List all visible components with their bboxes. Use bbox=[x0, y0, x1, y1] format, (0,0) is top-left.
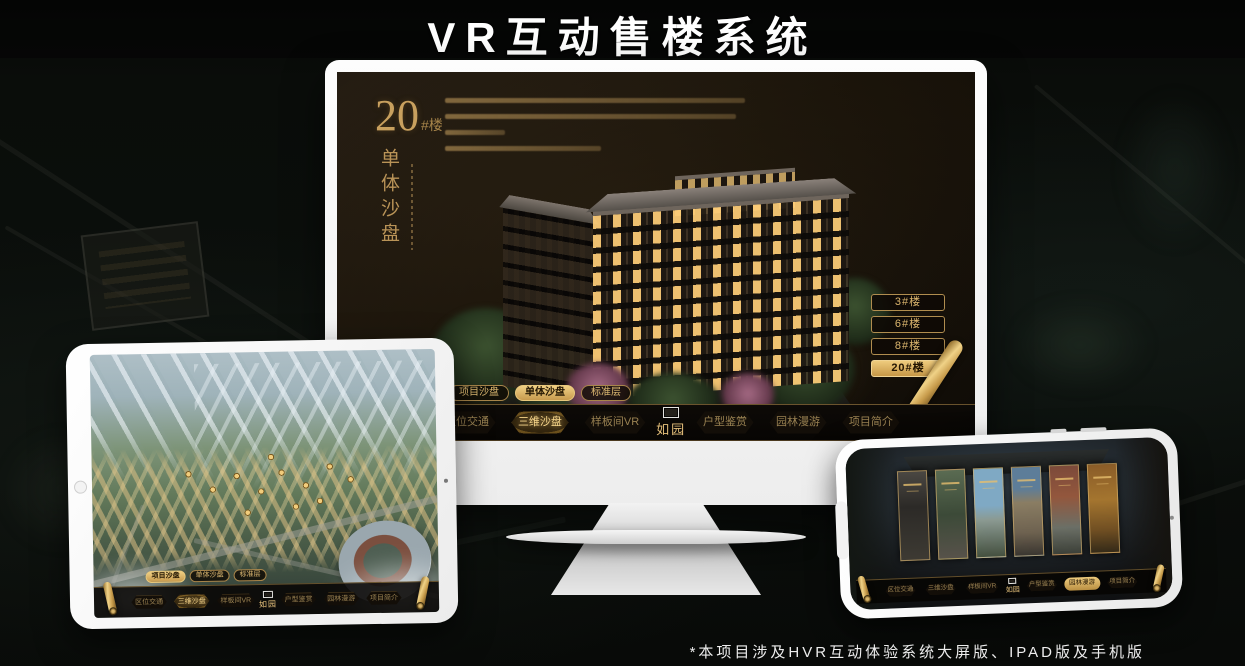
nav-item-3d-sandbox[interactable]: 三维沙盘 bbox=[506, 410, 574, 435]
nav-item-garden-roam-active[interactable]: 园林漫游 bbox=[1064, 577, 1100, 591]
project-logo[interactable]: 如园 bbox=[259, 590, 277, 609]
home-button[interactable] bbox=[74, 480, 87, 493]
gallery-panel-sky-view[interactable] bbox=[973, 467, 1006, 558]
camera-icon bbox=[1170, 515, 1174, 519]
sandbox-subtabs: 项目沙盘 单体沙盘 标准层 bbox=[449, 385, 637, 401]
building-front-facade bbox=[593, 193, 849, 399]
floor-button-3[interactable]: 3#楼 bbox=[871, 294, 945, 311]
volume-button[interactable] bbox=[1080, 427, 1106, 432]
logo-text: 如园 bbox=[259, 598, 277, 609]
page-title: VR互动售楼系统 bbox=[0, 4, 1245, 65]
camera-icon bbox=[444, 478, 448, 482]
subtab-project-sandbox-active[interactable]: 项目沙盘 bbox=[146, 570, 186, 583]
promo-stage: VR互动售楼系统 20#楼 单体沙盘 bbox=[0, 0, 1245, 666]
nav-item-floorplans[interactable]: 户型鉴赏 bbox=[691, 410, 759, 435]
monitor-stand-foot bbox=[506, 530, 806, 544]
seal-icon bbox=[663, 407, 679, 418]
main-nav-bar: 区位交通 三维沙盘 样板间VR 如园 户型鉴赏 园林漫游 项目简介 bbox=[856, 568, 1167, 604]
text-line bbox=[445, 130, 505, 135]
building-suffix: #楼 bbox=[421, 117, 443, 133]
description-paragraph bbox=[445, 98, 745, 162]
tablet-device: 项目沙盘 单体沙盘 标准层 区位交通 三维沙盘 样板间VR 如园 户型鉴赏 园林… bbox=[66, 338, 459, 630]
text-line bbox=[445, 98, 745, 103]
subtab-project-sandbox[interactable]: 项目沙盘 bbox=[449, 385, 509, 401]
text-line bbox=[445, 114, 736, 119]
nav-item-garden-roam[interactable]: 园林漫游 bbox=[764, 410, 832, 435]
sandbox-subtabs: 项目沙盘 单体沙盘 标准层 bbox=[146, 569, 271, 583]
nav-item-location[interactable]: 区位交通 bbox=[128, 594, 170, 610]
gallery-panel-autumn[interactable] bbox=[1049, 464, 1082, 555]
subtab-single-building[interactable]: 单体沙盘 bbox=[515, 385, 575, 401]
power-button[interactable] bbox=[1050, 429, 1066, 434]
gallery-panel-courtyard[interactable] bbox=[897, 470, 930, 561]
subtab-standard-floor[interactable]: 标准层 bbox=[233, 569, 266, 582]
project-logo[interactable]: 如园 bbox=[656, 407, 686, 438]
phone-notch bbox=[835, 501, 849, 559]
vertical-divider bbox=[411, 164, 413, 250]
nav-item-showroom-vr[interactable]: 样板间VR bbox=[963, 581, 1002, 595]
mode-title-vertical: 单体沙盘 bbox=[375, 148, 402, 248]
tablet-screen: 项目沙盘 单体沙盘 标准层 区位交通 三维沙盘 样板间VR 如园 户型鉴赏 园林… bbox=[90, 349, 440, 618]
text-line bbox=[445, 146, 601, 151]
background-glow bbox=[1120, 90, 1230, 250]
logo-text: 如园 bbox=[656, 419, 686, 438]
nav-item-project-intro[interactable]: 项目简介 bbox=[1104, 575, 1140, 589]
project-logo[interactable]: 如园 bbox=[1005, 578, 1020, 596]
main-nav-bar: 区位交通 三维沙盘 样板间VR 如园 户型鉴赏 园林漫游 项目简介 bbox=[94, 581, 439, 618]
building-number: 20 bbox=[375, 91, 419, 140]
floor-button-6[interactable]: 6#楼 bbox=[871, 316, 945, 333]
gallery-panel-interior[interactable] bbox=[1087, 463, 1120, 554]
subtab-single-building[interactable]: 单体沙盘 bbox=[190, 570, 230, 583]
floor-button-8[interactable]: 8#楼 bbox=[871, 338, 945, 355]
monitor-stand bbox=[551, 503, 761, 595]
nav-item-3d-sandbox[interactable]: 三维沙盘 bbox=[922, 582, 958, 596]
nav-item-garden-roam[interactable]: 园林漫游 bbox=[320, 591, 362, 607]
background-plaque bbox=[81, 221, 210, 331]
nav-item-project-intro[interactable]: 项目简介 bbox=[837, 410, 905, 435]
seal-icon bbox=[1008, 578, 1016, 584]
nav-item-floorplans[interactable]: 户型鉴赏 bbox=[1024, 578, 1060, 592]
nav-item-location[interactable]: 区位交通 bbox=[882, 584, 918, 598]
nav-item-showroom-vr[interactable]: 样板间VR bbox=[213, 593, 258, 609]
subtab-standard-floor[interactable]: 标准层 bbox=[581, 385, 631, 401]
phone-screen: 区位交通 三维沙盘 样板间VR 如园 户型鉴赏 园林漫游 项目简介 bbox=[845, 437, 1173, 610]
nav-item-floorplans[interactable]: 户型鉴赏 bbox=[277, 592, 319, 608]
nav-item-project-intro[interactable]: 项目简介 bbox=[363, 590, 405, 606]
logo-text: 如园 bbox=[1006, 585, 1020, 596]
footnote: *本项目涉及HVR互动体验系统大屏版、IPAD版及手机版 bbox=[690, 641, 1145, 662]
phone-device: 区位交通 三维沙盘 样板间VR 如园 户型鉴赏 园林漫游 项目简介 bbox=[835, 428, 1184, 620]
gallery-panel-facade[interactable] bbox=[1011, 466, 1044, 557]
nav-item-showroom-vr[interactable]: 样板间VR bbox=[579, 410, 651, 435]
scene-gallery bbox=[897, 463, 1120, 561]
background-glow bbox=[1010, 300, 1150, 390]
seal-icon bbox=[263, 590, 273, 597]
nav-item-3d-sandbox[interactable]: 三维沙盘 bbox=[171, 593, 213, 609]
gallery-panel-garden[interactable] bbox=[935, 469, 968, 560]
